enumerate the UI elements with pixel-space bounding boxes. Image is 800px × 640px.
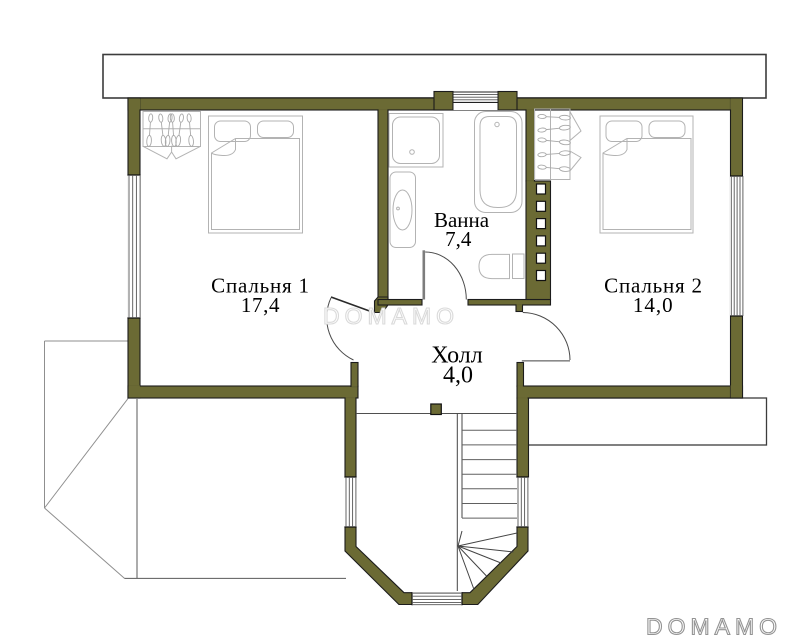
svg-text:DOMAMO: DOMAMO <box>646 614 782 640</box>
svg-text:7,4: 7,4 <box>445 227 472 251</box>
svg-text:14,0: 14,0 <box>633 293 674 317</box>
svg-text:17,4: 17,4 <box>241 293 280 317</box>
svg-text:4,0: 4,0 <box>443 362 473 388</box>
svg-text:DOMAMO: DOMAMO <box>323 303 459 329</box>
